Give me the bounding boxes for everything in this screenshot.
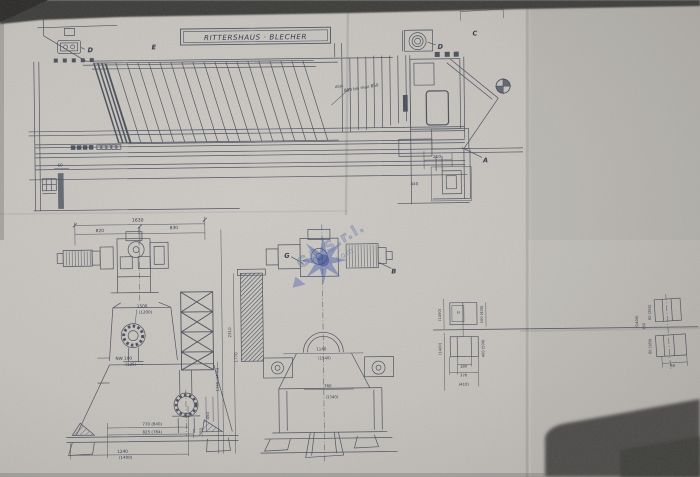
drawing-canvas: RITTERSHAUS · BLECHER D E D C A G B Abst… (0, 0, 700, 477)
film-grain (0, 0, 700, 477)
scanned-technical-drawing: RITTERSHAUS · BLECHER D E D C A G B Abst… (0, 0, 700, 477)
